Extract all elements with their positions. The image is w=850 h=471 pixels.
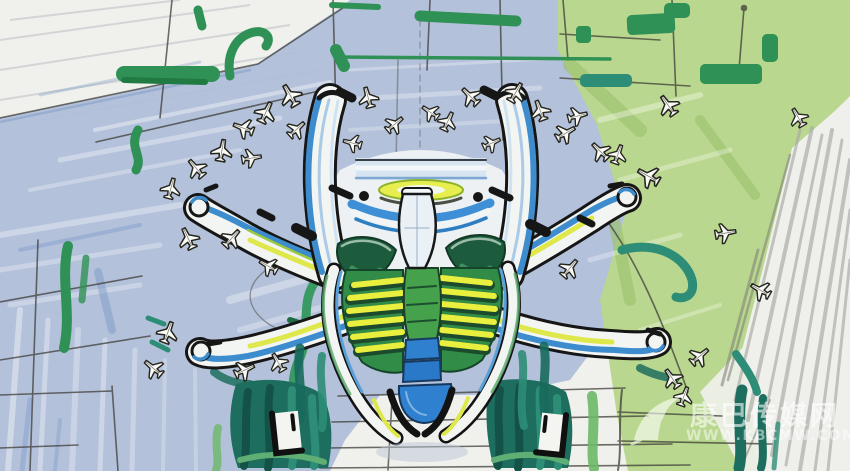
watermark: 康巴传媒网 WWW.KBCMW.COM [630, 392, 850, 464]
central-atrium-capsule [399, 188, 436, 268]
watermark-url: WWW.KBCMW.COM [686, 428, 850, 444]
sketch-canvas: 康巴传媒网 WWW.KBCMW.COM [0, 0, 850, 471]
ground-shadow [376, 442, 468, 462]
watermark-logo-icon [630, 392, 686, 448]
